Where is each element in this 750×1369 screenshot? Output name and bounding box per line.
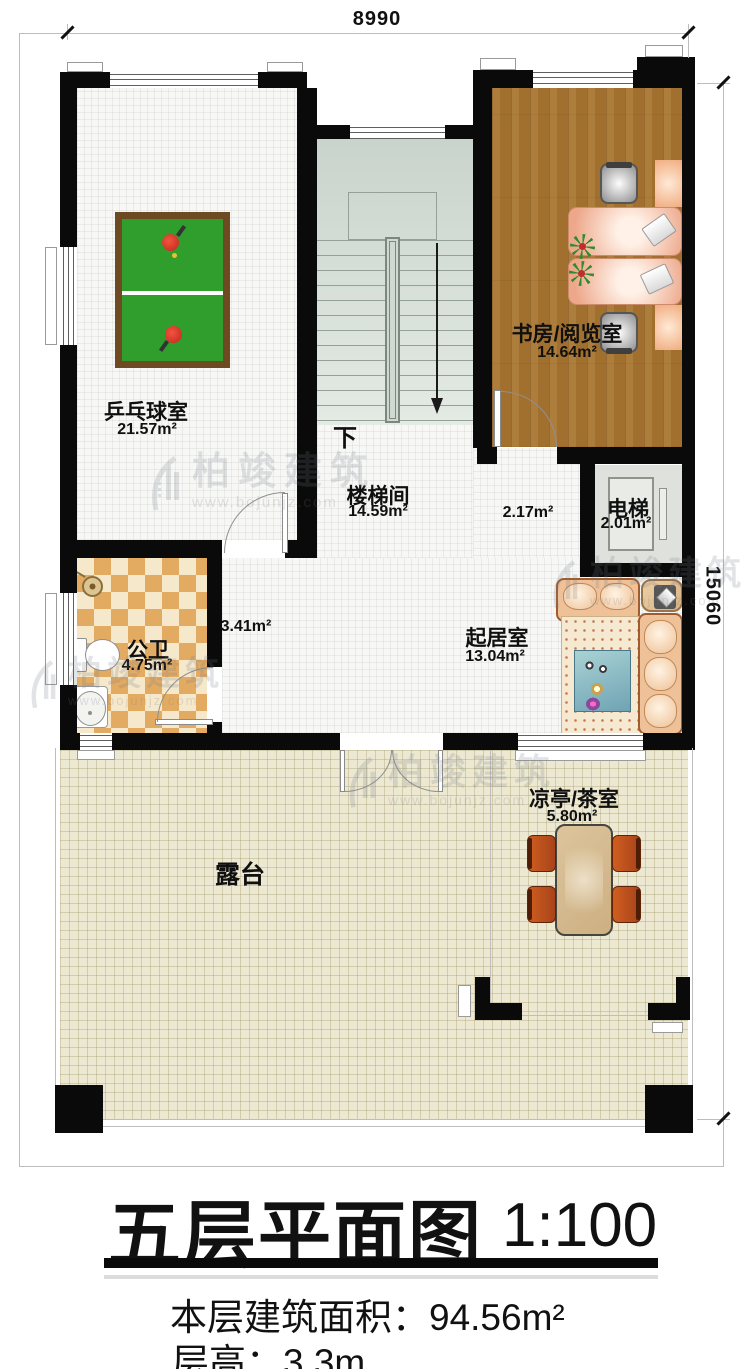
room-label-terrace: 露台 [215, 855, 265, 891]
shower-head-icon [82, 576, 103, 597]
room-area-pingpong: 21.57m² [117, 421, 177, 439]
window-sill [45, 593, 57, 685]
stair-down-label: 下 [333, 418, 357, 453]
dimension-top-value: 8990 [353, 8, 402, 31]
extension-line [697, 83, 730, 84]
room-area-bathroom: 4.75m² [122, 657, 173, 675]
column-L [676, 977, 690, 1020]
tea-table [555, 824, 613, 936]
stair-direction-line [436, 243, 438, 399]
coffee-table [574, 650, 631, 712]
tea-chair [612, 835, 641, 872]
wall-study-south [557, 447, 695, 464]
sink-basin [75, 691, 106, 726]
corner-lamp-table [641, 579, 683, 612]
window [60, 593, 77, 685]
extension-line [697, 1119, 730, 1120]
pingpong-paddle-icon [165, 326, 182, 343]
room-area-pavilion: 5.80m² [547, 808, 598, 826]
window-sill [515, 750, 646, 761]
title-underline-shadow [104, 1275, 658, 1279]
wall-elevator-west [580, 447, 595, 577]
room-area-stairwell: 14.59m² [348, 503, 408, 521]
wall-stub [285, 540, 317, 558]
site-line-left [19, 33, 20, 1167]
window-sill [45, 247, 57, 345]
potted-plant-icon [570, 234, 595, 259]
terrace-edge [692, 748, 693, 1127]
tea-chair [527, 835, 556, 872]
terrace-edge [55, 748, 56, 1127]
pavilion-boundary [490, 750, 491, 1016]
wall-elevator-south [580, 563, 695, 577]
study-side-table [655, 160, 682, 207]
toilet-bowl [85, 639, 120, 671]
sofa-three-seat [638, 613, 683, 735]
window [350, 125, 445, 139]
elevator-counterweight [659, 488, 667, 540]
window-sill [480, 58, 516, 70]
stair-center-rail [385, 237, 400, 423]
door-opening-main [340, 733, 443, 750]
office-chair [600, 163, 638, 204]
wall-stair-top [317, 125, 350, 139]
tea-chair [527, 886, 556, 923]
wall-study-west [473, 88, 492, 448]
wall-stair-top [445, 125, 473, 139]
window [60, 247, 77, 345]
area-hall-right: 2.17m² [503, 504, 554, 522]
wall-bathroom-north [60, 540, 222, 558]
window-sill [267, 62, 303, 72]
window [518, 733, 643, 750]
sink-drain [88, 711, 92, 715]
column [645, 1085, 693, 1133]
site-line-bottom [19, 1166, 723, 1167]
railing-sill [458, 985, 471, 1017]
dimension-line-top [19, 33, 688, 34]
terrace-edge [55, 1126, 693, 1127]
room-area-study: 14.64m² [537, 344, 597, 362]
floorplan-page: 8990 15060 乒乓球室 21.57m² 书房/阅览室 14.64m² 楼… [0, 0, 750, 1369]
stair-landing-outline [348, 192, 437, 240]
room-area-living: 13.04m² [465, 648, 525, 666]
stair-down-arrow-icon [431, 398, 443, 414]
window-sill [77, 750, 115, 760]
potted-plant-icon [569, 261, 594, 286]
plan-scale: 1:100 [502, 1190, 657, 1261]
window [80, 733, 112, 750]
column [55, 1085, 103, 1133]
floor-height-text: 层高：3.3m [172, 1332, 365, 1369]
area-hall-left: 3.41m² [221, 618, 272, 636]
wall-bathroom-east [207, 558, 222, 667]
window [110, 72, 258, 88]
terrace-edge [55, 1119, 693, 1120]
room-area-elevator: 2.01m² [601, 515, 652, 533]
wall-right-exterior [682, 57, 695, 750]
pingpong-paddle-icon [162, 234, 179, 251]
pingpong-ball-icon [172, 253, 177, 258]
living-room-rug [561, 616, 643, 734]
window [533, 70, 633, 88]
railing-sill [652, 1022, 683, 1033]
column-L [475, 1003, 522, 1020]
tea-chair [612, 886, 641, 923]
dimension-right-value: 15060 [701, 566, 724, 627]
study-side-table [655, 305, 682, 350]
window-sill [645, 45, 683, 57]
title-underline [104, 1258, 658, 1268]
wall-study-south [477, 447, 497, 464]
window-sill [67, 62, 103, 72]
wall-pingpong-stair [297, 88, 317, 558]
